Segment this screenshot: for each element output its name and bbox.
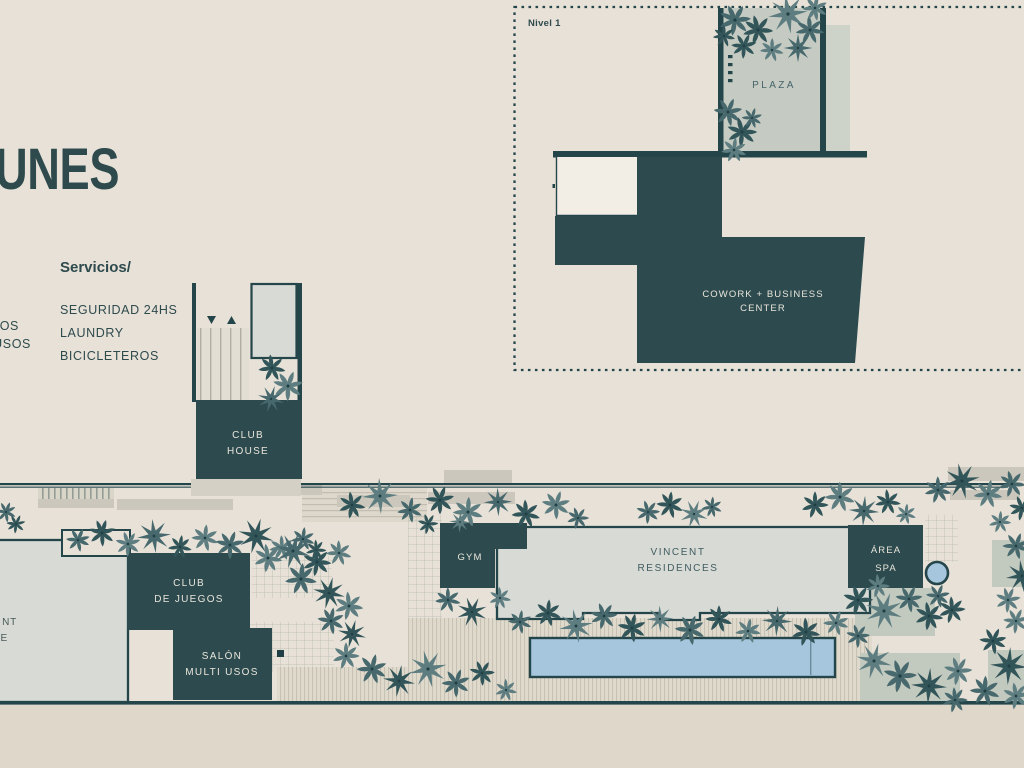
plant-icon (784, 34, 813, 63)
left-building-cut-label: E (1, 633, 8, 644)
cowork-label: COWORK + BUSINESS (702, 289, 823, 300)
site-plan-svg: UNES Servicios/ SEGURIDAD 24HS LAUNDRY B… (0, 0, 1024, 768)
salon-multiusos-label: MULTI USOS (185, 667, 258, 678)
area-spa-label: ÁREA (871, 545, 901, 556)
club-house-porch (191, 479, 301, 496)
crosswalk (38, 488, 114, 499)
spa-plunge-pool (926, 562, 948, 584)
cut-amenity-label: USOS (0, 337, 31, 351)
cowork-label: CENTER (740, 303, 786, 314)
inset-wall-bar (553, 151, 867, 158)
service-item: LAUNDRY (60, 326, 124, 340)
club-house-label: CLUB (232, 430, 264, 441)
bottom-boundary-line (0, 701, 1024, 705)
page-title: UNES (0, 138, 119, 203)
ramp-hatch (197, 328, 249, 400)
left-residence-building (0, 540, 128, 702)
cut-amenity-label: OS (0, 319, 19, 333)
street-band (0, 704, 1024, 768)
residences-label: RESIDENCES (637, 563, 718, 574)
area-spa-label: SPA (875, 563, 897, 574)
forecourt (252, 284, 297, 358)
plaza-label: PLAZA (752, 80, 796, 91)
residences-label: VINCENT (650, 547, 705, 558)
left-building-cut-label: NT (2, 617, 17, 628)
lap-pool (530, 638, 835, 677)
inset-level-label: Nivel 1 (528, 18, 561, 29)
club-de-juegos-label: CLUB (173, 578, 205, 589)
inset-white-room (556, 157, 637, 216)
site-plan-canvas: UNES Servicios/ SEGURIDAD 24HS LAUNDRY B… (0, 0, 1024, 768)
service-item: SEGURIDAD 24HS (60, 303, 177, 317)
club-de-juegos-label: DE JUEGOS (154, 594, 224, 605)
area-spa-block (848, 525, 923, 588)
door-marker (277, 650, 284, 657)
gym-label: GYM (458, 552, 483, 563)
salon-multiusos-label: SALÓN (202, 649, 242, 662)
club-house-label: HOUSE (227, 446, 269, 457)
service-item: BICICLETEROS (60, 349, 159, 363)
services-heading: Servicios/ (60, 259, 132, 276)
